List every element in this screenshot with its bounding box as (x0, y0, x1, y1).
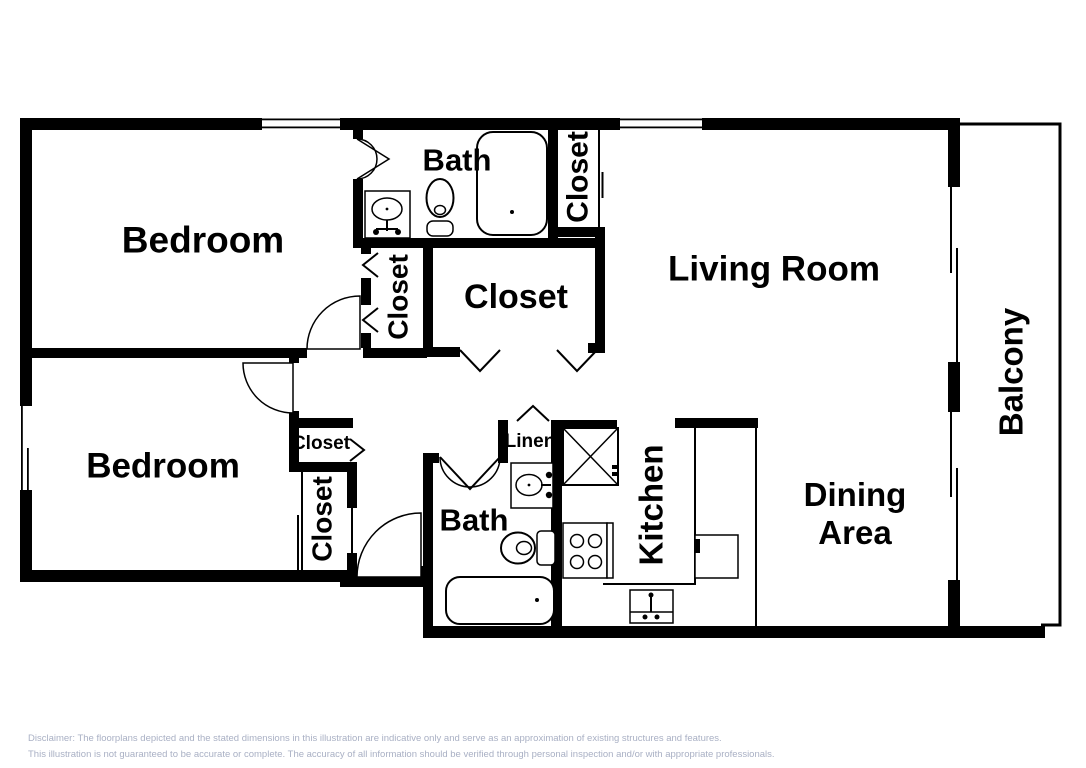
floorplan-page: Bedroom Bath Closet Living Room Closet C… (0, 0, 1086, 768)
disclaimer-text: Disclaimer: The floorplans depicted and … (28, 731, 775, 762)
door-swing-icon (363, 253, 378, 277)
door-swing-icon (440, 457, 500, 487)
room-label-closet-small: Closet (292, 434, 350, 454)
door-swing-icon (350, 439, 364, 461)
window-icon (262, 118, 340, 130)
room-label-closet-bedroom-top: Closet (383, 254, 412, 340)
room-label-balcony: Balcony (995, 308, 1030, 436)
door-swing-icon (517, 406, 549, 421)
refrigerator-icon (563, 428, 618, 485)
room-label-kitchen: Kitchen (635, 444, 670, 565)
room-label-closet-bedroom-bottom: Closet (307, 476, 336, 562)
room-label-closet-center: Closet (464, 280, 568, 316)
door-swing-icon (363, 308, 378, 332)
window-icon (21, 406, 29, 490)
room-label-linen: Linen (505, 432, 556, 452)
door-swing-icon (307, 296, 360, 349)
toilet-icon (501, 531, 555, 565)
room-label-bath-top: Bath (423, 145, 492, 178)
kitchen-sink-icon (630, 590, 673, 623)
bathtub-icon (446, 577, 554, 624)
room-label-living-room: Living Room (668, 252, 880, 289)
door-swing-icon (440, 457, 500, 489)
stove-icon (563, 523, 613, 578)
door-swing-icon (243, 363, 293, 413)
floorplan-drawing (0, 0, 1086, 768)
door-swing-icon (460, 350, 500, 371)
door-swing-icon (357, 513, 421, 577)
bath-bottom-fixtures (446, 463, 555, 624)
sink-icon (511, 463, 553, 508)
disclaimer-line-1: Disclaimer: The floorplans depicted and … (28, 731, 775, 747)
toilet-icon (427, 179, 454, 236)
kitchen-peninsula (695, 535, 738, 578)
door-swing-icon (357, 139, 389, 179)
room-label-bedroom-top: Bedroom (122, 222, 284, 261)
room-label-bedroom-bottom: Bedroom (86, 449, 240, 486)
window-icon (620, 118, 702, 130)
room-label-dining-area: Dining Area (775, 476, 935, 552)
room-label-closet-bath-top: Closet (562, 131, 594, 223)
room-label-bath-bottom: Bath (440, 505, 509, 538)
door-swing-icon (557, 350, 597, 371)
disclaimer-line-2: This illustration is not guaranteed to b… (28, 747, 775, 763)
sink-icon (365, 191, 410, 238)
